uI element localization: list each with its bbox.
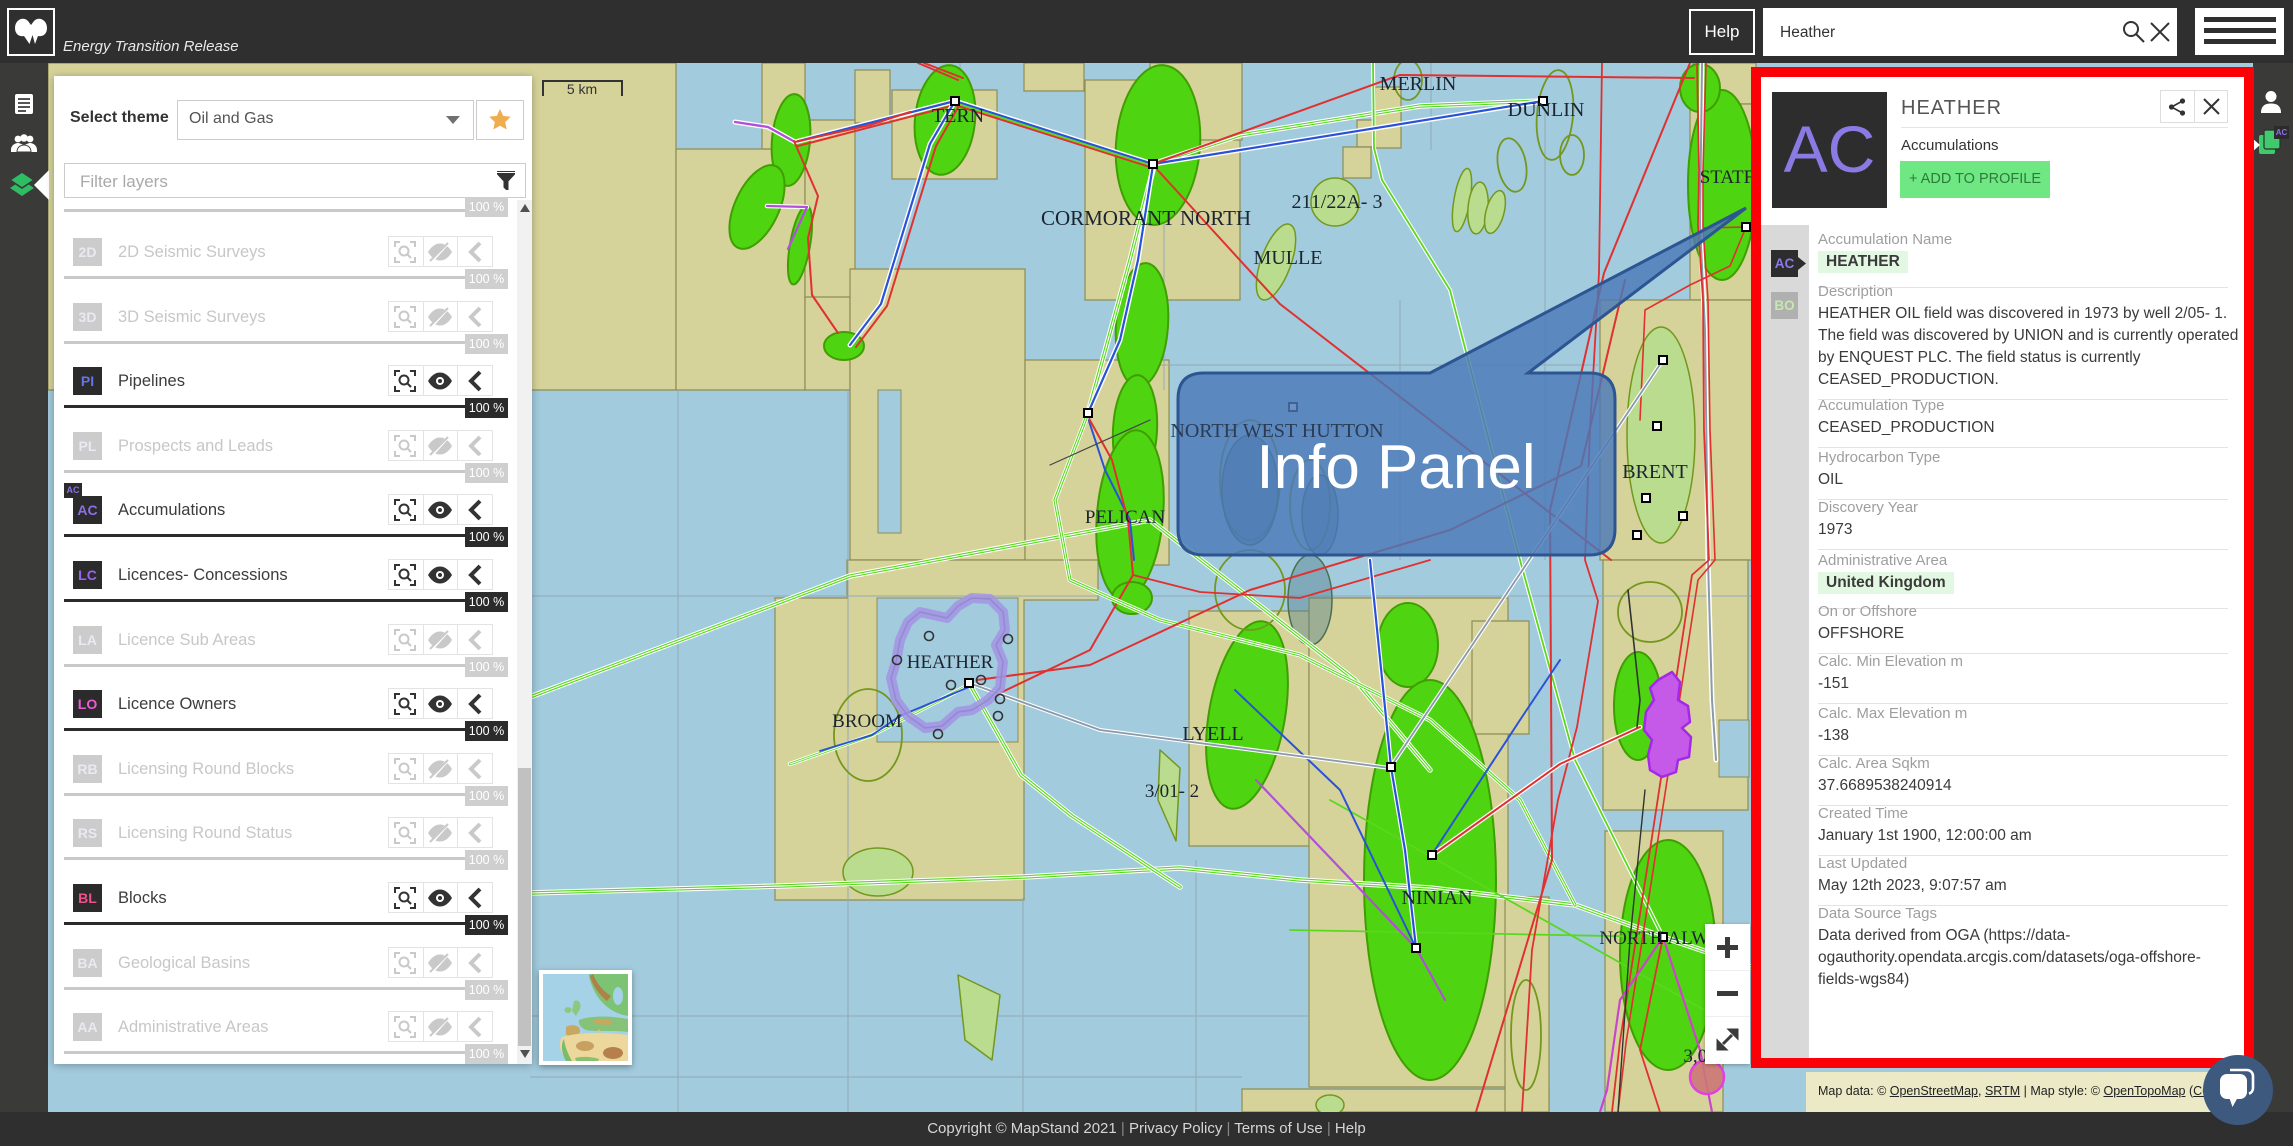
svg-text:TERN: TERN bbox=[932, 105, 984, 127]
svg-text:CORMORANT NORTH: CORMORANT NORTH bbox=[1041, 206, 1251, 230]
svg-text:5 km: 5 km bbox=[567, 81, 597, 97]
svg-text:PELICAN: PELICAN bbox=[1085, 507, 1166, 528]
svg-text:MERLIN: MERLIN bbox=[1380, 73, 1457, 95]
svg-text:NINIAN: NINIAN bbox=[1401, 887, 1472, 909]
svg-text:LYELL: LYELL bbox=[1182, 723, 1243, 745]
svg-text:BRENT: BRENT bbox=[1622, 461, 1688, 483]
svg-text:BROOM: BROOM bbox=[832, 711, 902, 732]
svg-text:HEATHER: HEATHER bbox=[907, 652, 994, 673]
svg-text:3/01- 2: 3/01- 2 bbox=[1145, 781, 1199, 802]
svg-text:DUNLIN: DUNLIN bbox=[1508, 99, 1585, 121]
svg-text:MULLE: MULLE bbox=[1254, 247, 1323, 269]
svg-text:STATF: STATF bbox=[1700, 167, 1754, 188]
svg-text:211/22A- 3: 211/22A- 3 bbox=[1292, 191, 1383, 213]
svg-text:Info Panel: Info Panel bbox=[1256, 433, 1535, 502]
